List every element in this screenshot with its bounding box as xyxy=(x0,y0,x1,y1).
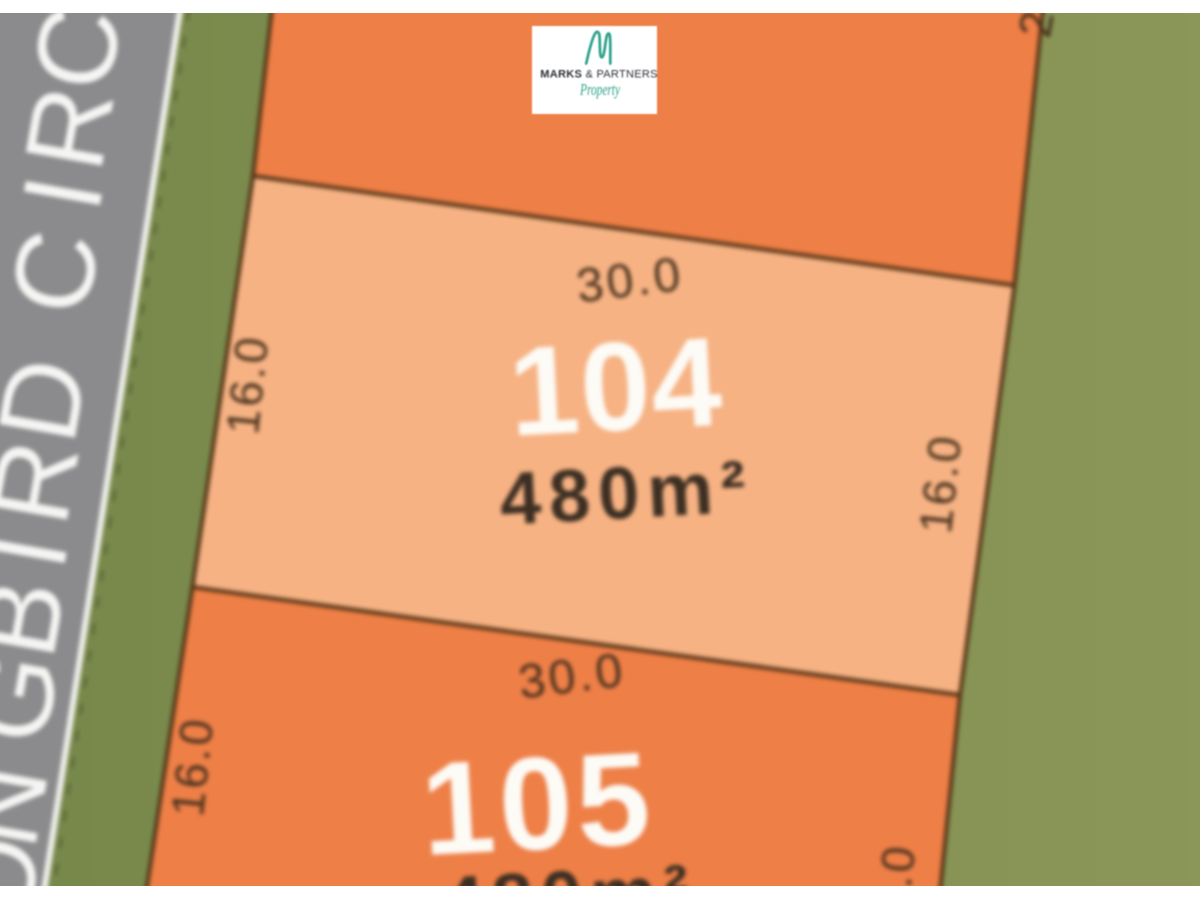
svg-text:MARKS & PARTNERS: MARKS & PARTNERS xyxy=(540,69,657,81)
svg-text:16.0: 16.0 xyxy=(161,714,223,818)
svg-text:104: 104 xyxy=(506,311,726,463)
svg-text:480m²: 480m² xyxy=(498,444,756,540)
svg-text:16.0: 16.0 xyxy=(909,431,971,535)
svg-text:Property: Property xyxy=(579,80,620,99)
svg-text:16.0: 16.0 xyxy=(216,332,278,436)
